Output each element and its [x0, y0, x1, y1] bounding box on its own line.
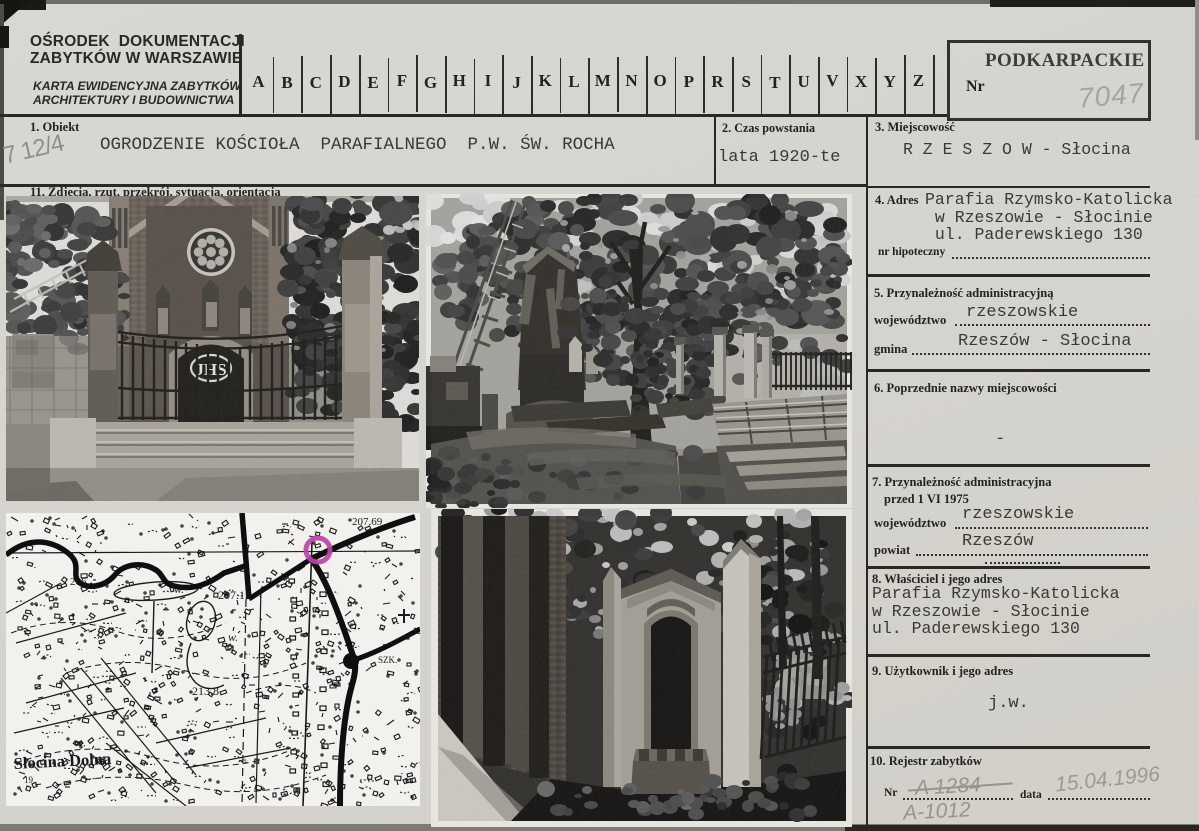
svg-text:207.15: 207.15 [218, 588, 251, 602]
svg-text:19.: 19. [24, 775, 35, 785]
svg-text:w.: w. [174, 582, 184, 596]
svg-text:213.8: 213.8 [192, 684, 219, 698]
svg-text:w.: w. [228, 630, 238, 644]
svg-text:207.69: 207.69 [352, 516, 383, 528]
svg-text:SZK.: SZK. [378, 655, 397, 665]
svg-text:206.: 206. [70, 576, 90, 588]
